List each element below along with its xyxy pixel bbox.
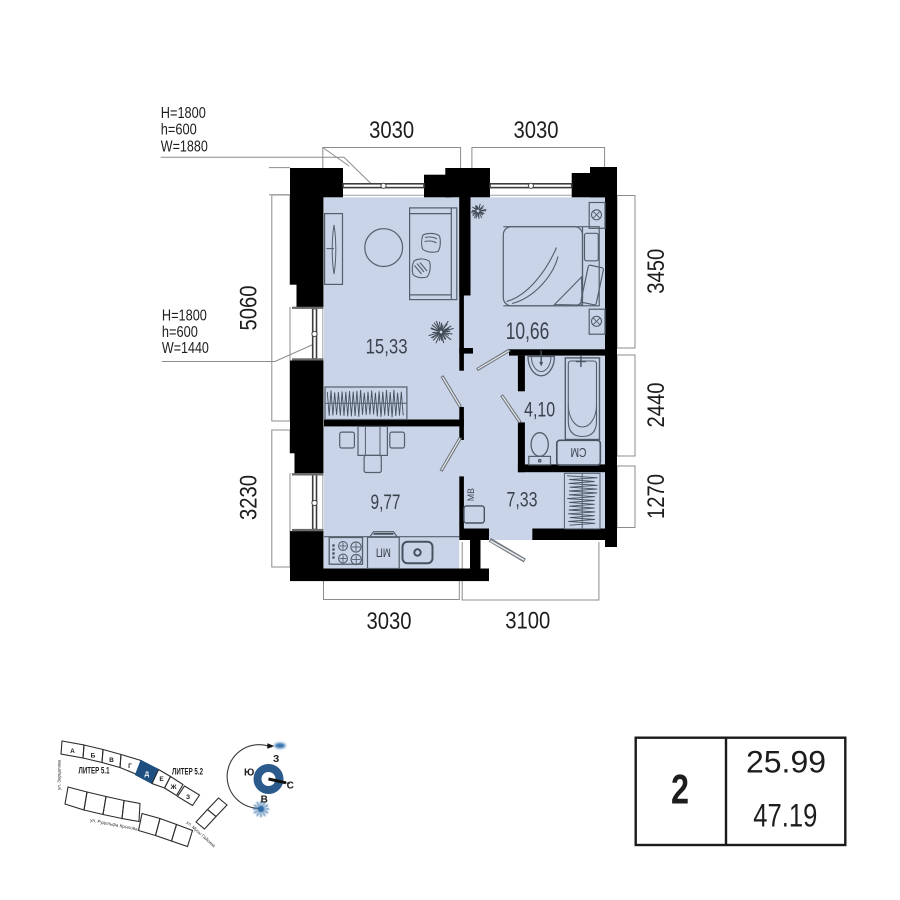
svg-text:МП: МП [376, 545, 391, 559]
svg-text:3030: 3030 [369, 117, 414, 144]
svg-text:З: З [186, 794, 190, 801]
svg-text:47.19: 47.19 [753, 798, 817, 834]
svg-text:Б: Б [91, 753, 96, 760]
svg-text:h=600: h=600 [161, 121, 197, 138]
svg-text:А: А [70, 748, 75, 755]
svg-text:3030: 3030 [367, 608, 412, 635]
svg-text:H=1800: H=1800 [161, 105, 206, 122]
svg-text:В: В [109, 757, 114, 764]
svg-text:3230: 3230 [236, 475, 263, 520]
svg-text:7,33: 7,33 [507, 489, 538, 512]
svg-text:С: С [287, 781, 294, 792]
svg-text:3030: 3030 [514, 117, 559, 144]
svg-text:10,66: 10,66 [506, 318, 550, 345]
svg-text:ул. Зерцалова: ул. Зерцалова [57, 759, 62, 790]
svg-text:5060: 5060 [236, 286, 263, 331]
svg-text:Г: Г [128, 763, 132, 770]
svg-text:3100: 3100 [505, 608, 550, 635]
svg-text:2: 2 [671, 765, 689, 812]
svg-text:4,10: 4,10 [524, 399, 555, 422]
svg-text:1270: 1270 [643, 474, 670, 519]
svg-text:ЛИТЕР 5.2: ЛИТЕР 5.2 [172, 767, 203, 778]
svg-text:З: З [273, 754, 279, 765]
svg-text:15,33: 15,33 [366, 336, 408, 359]
svg-text:СМ: СМ [571, 445, 587, 460]
svg-text:МВ: МВ [466, 488, 476, 501]
svg-text:2440: 2440 [643, 383, 670, 428]
svg-text:9,77: 9,77 [371, 491, 401, 514]
svg-text:Ю: Ю [244, 767, 254, 778]
svg-text:W=1440: W=1440 [162, 340, 209, 357]
svg-text:В: В [261, 795, 268, 806]
svg-text:W=1880: W=1880 [161, 138, 208, 155]
svg-text:3450: 3450 [643, 249, 670, 294]
svg-text:Ж: Ж [170, 784, 177, 791]
svg-text:Е: Е [159, 776, 164, 783]
svg-text:25.99: 25.99 [746, 744, 826, 780]
svg-text:h=600: h=600 [162, 324, 198, 341]
svg-text:Д: Д [144, 771, 149, 778]
svg-text:H=1800: H=1800 [162, 308, 207, 325]
svg-text:ЛИТЕР 5.1: ЛИТЕР 5.1 [79, 766, 110, 777]
